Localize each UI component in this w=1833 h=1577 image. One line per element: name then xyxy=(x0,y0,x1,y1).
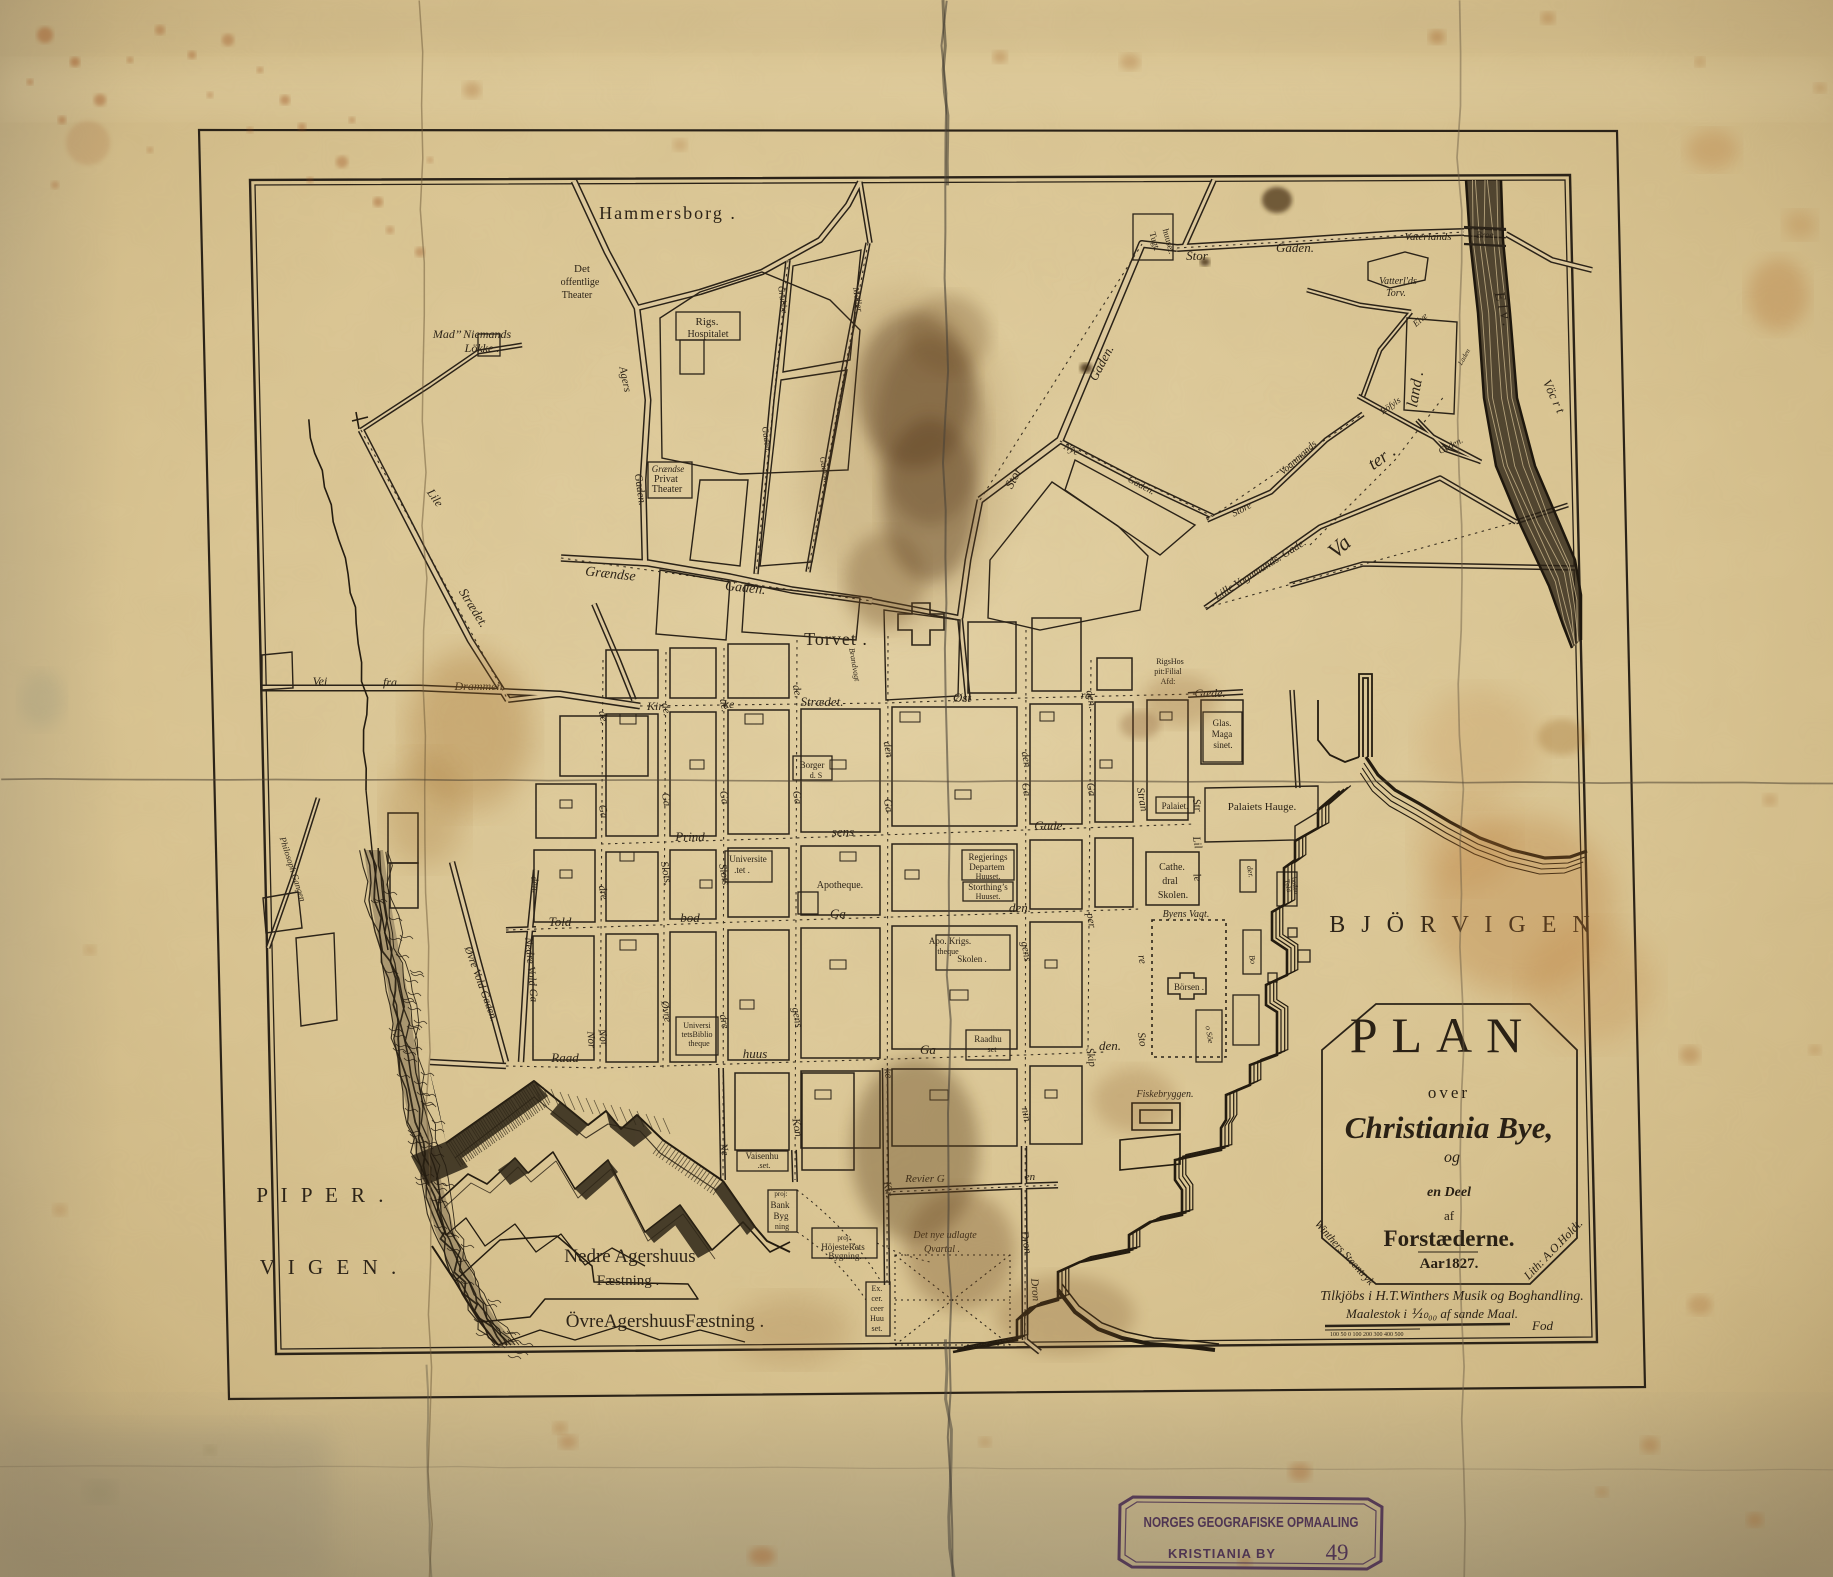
svg-text:Universite: Universite xyxy=(729,854,767,864)
svg-text:RigsHos: RigsHos xyxy=(1156,657,1184,666)
svg-text:theque: theque xyxy=(688,1039,710,1048)
svg-text:Lökke .: Lökke . xyxy=(464,341,500,355)
svg-text:den.: den. xyxy=(1099,1038,1121,1053)
svg-text:ning: ning xyxy=(775,1222,789,1231)
svg-text:dre: dre xyxy=(596,884,610,900)
svg-text:Vatterl'ds: Vatterl'ds xyxy=(1379,276,1417,287)
svg-text:over: over xyxy=(1428,1083,1470,1102)
svg-text:Øst: Øst xyxy=(952,690,971,705)
svg-text:en: en xyxy=(1025,1171,1036,1183)
svg-text:og: og xyxy=(1444,1149,1460,1166)
svg-text:Glas.: Glas. xyxy=(1213,718,1232,728)
svg-text:set.: set. xyxy=(872,1324,883,1333)
svg-text:Storthing’s: Storthing’s xyxy=(968,882,1008,892)
svg-text:den.: den. xyxy=(1009,900,1031,915)
svg-text:Nedre Agershuus: Nedre Agershuus xyxy=(564,1246,695,1267)
svg-text:Ga: Ga xyxy=(790,790,804,806)
svg-text:Prind: Prind xyxy=(674,829,705,844)
svg-text:af: af xyxy=(1444,1208,1455,1223)
svg-text:Byens Vagt.: Byens Vagt. xyxy=(1163,909,1210,920)
svg-text:Skolen .: Skolen . xyxy=(957,954,987,964)
svg-text:Mad’’ Niemands: Mad’’ Niemands xyxy=(432,327,512,341)
svg-text:KRISTIANIA BY: KRISTIANIA BY xyxy=(1168,1547,1276,1561)
svg-text:Nor: Nor xyxy=(584,1030,598,1050)
svg-text:den.: den. xyxy=(528,876,540,894)
svg-text:Hammersborg .: Hammersborg . xyxy=(599,203,737,223)
svg-text:Det: Det xyxy=(574,263,590,275)
svg-text:NORGES GEOGRAFISKE OPMAALING: NORGES GEOGRAFISKE OPMAALING xyxy=(1144,1515,1359,1531)
svg-text:Ga: Ga xyxy=(1084,782,1098,798)
svg-text:de.: de. xyxy=(659,702,673,717)
svg-text:set: set xyxy=(988,1045,998,1054)
svg-text:Universi: Universi xyxy=(683,1021,711,1030)
svg-text:nin: nin xyxy=(1019,1107,1033,1123)
svg-text:Vei: Vei xyxy=(313,674,328,688)
svg-text:Huu: Huu xyxy=(870,1314,884,1323)
svg-text:Palaiets Hauge.: Palaiets Hauge. xyxy=(1228,801,1297,813)
svg-text:Ga: Ga xyxy=(830,906,846,921)
svg-text:Ne: Ne xyxy=(717,1141,731,1156)
svg-text:Told: Told xyxy=(549,914,572,929)
svg-text:Ga: Ga xyxy=(1019,782,1033,798)
svg-text:cer.: cer. xyxy=(871,1294,882,1303)
svg-text:Bo: Bo xyxy=(1247,954,1257,964)
svg-text:Lil: Lil xyxy=(1190,834,1204,849)
svg-text:Apotheque.: Apotheque. xyxy=(817,880,863,891)
svg-text:dral: dral xyxy=(1162,876,1178,887)
svg-text:Sto: Sto xyxy=(1135,1032,1149,1048)
svg-text:Ga: Ga xyxy=(659,792,673,808)
svg-text:Strædet.: Strædet. xyxy=(801,694,844,709)
svg-text:Borger: Borger xyxy=(800,760,825,770)
svg-text:Grændse: Grændse xyxy=(652,464,685,474)
svg-text:Theater: Theater xyxy=(652,484,683,495)
svg-text:dre: dre xyxy=(717,1013,731,1029)
svg-text:Huuset.: Huuset. xyxy=(976,892,1001,901)
svg-text:fra: fra xyxy=(383,675,397,689)
svg-text:offentlige: offentlige xyxy=(561,277,600,288)
svg-text:en Deel: en Deel xyxy=(1427,1185,1471,1200)
svg-text:V I G E N .: V I G E N . xyxy=(260,1255,400,1279)
svg-text:Ex.: Ex. xyxy=(872,1284,883,1293)
svg-text:Maalestok i ⅒₀₀ af sande Maal.: Maalestok i ⅒₀₀ af sande Maal. xyxy=(1345,1306,1518,1321)
svg-text:proj:: proj: xyxy=(837,1234,850,1242)
svg-text:Ga: Ga xyxy=(717,790,731,806)
svg-text:Regjerings: Regjerings xyxy=(969,852,1008,862)
svg-text:sinet.: sinet. xyxy=(1213,740,1232,750)
svg-text:de.: de. xyxy=(717,698,731,713)
svg-text:d. S: d. S xyxy=(810,771,822,780)
svg-text:Raadhu: Raadhu xyxy=(974,1034,1002,1044)
svg-text:Hospitalet: Hospitalet xyxy=(687,329,728,340)
svg-text:huus: huus xyxy=(743,1046,768,1061)
svg-text:Apo. Krigs.: Apo. Krigs. xyxy=(929,936,971,946)
svg-text:Vaterlands: Vaterlands xyxy=(1404,231,1451,243)
svg-text:Ga: Ga xyxy=(881,798,895,814)
svg-text:Forstæderne.: Forstæderne. xyxy=(1384,1226,1515,1251)
svg-text:Skolen.: Skolen. xyxy=(1158,890,1188,901)
svg-text:Vaisenhu: Vaisenhu xyxy=(746,1151,779,1161)
svg-text:Fod: Fod xyxy=(1531,1318,1553,1333)
svg-text:49: 49 xyxy=(1326,1540,1349,1565)
svg-text:Bygning.: Bygning. xyxy=(828,1251,861,1261)
svg-text:Departem: Departem xyxy=(969,862,1004,872)
svg-text:Torv.: Torv. xyxy=(1386,288,1406,299)
svg-text:Fæstning .: Fæstning . xyxy=(597,1273,660,1289)
svg-text:Maga: Maga xyxy=(1212,729,1233,739)
svg-text:Cathe.: Cathe. xyxy=(1159,862,1185,873)
svg-text:Gade.: Gade. xyxy=(1034,818,1065,833)
svg-text:Torvet .: Torvet . xyxy=(804,629,868,649)
svg-text:Tilkjöbs i H.T.Winthers Musik: Tilkjöbs i H.T.Winthers Musik og Boghand… xyxy=(1320,1289,1583,1304)
svg-text:de.: de. xyxy=(790,684,804,699)
svg-text:ceer: ceer xyxy=(870,1304,884,1313)
svg-text:P I P E R .: P I P E R . xyxy=(256,1183,387,1207)
svg-text:Byg: Byg xyxy=(773,1211,789,1221)
svg-text:100 50 0 100 200 300 400 500: 100 50 0 100 200 300 400 500 xyxy=(1330,1332,1404,1338)
svg-text:Ga: Ga xyxy=(596,804,610,820)
svg-text:Huuset.: Huuset. xyxy=(976,872,1001,881)
svg-text:Palaiet.: Palaiet. xyxy=(1162,801,1189,811)
svg-text:sens: sens xyxy=(832,824,854,839)
svg-text:Rigs.: Rigs. xyxy=(696,316,719,328)
svg-text:Broe.: Broe. xyxy=(1476,230,1495,240)
svg-text:Bank: Bank xyxy=(771,1200,790,1210)
svg-text:.set.: .set. xyxy=(758,1161,771,1170)
svg-text:bod: bod xyxy=(680,910,700,925)
svg-text:proj:: proj: xyxy=(774,1190,787,1198)
svg-text:de.: de. xyxy=(596,710,610,725)
svg-text:Raad: Raad xyxy=(550,1050,579,1065)
svg-text:tetsBiblio: tetsBiblio xyxy=(681,1030,712,1039)
svg-text:Christiania Bye,: Christiania Bye, xyxy=(1345,1110,1553,1145)
svg-text:Ga: Ga xyxy=(920,1042,936,1057)
svg-text:Aar1827.: Aar1827. xyxy=(1420,1256,1479,1272)
svg-text:Börsen .: Börsen . xyxy=(1174,982,1204,992)
svg-text:Gaden.: Gaden. xyxy=(1276,240,1314,255)
svg-text:.tet .: .tet . xyxy=(734,865,750,875)
svg-text:Theater: Theater xyxy=(562,290,593,301)
svg-text:PLAN: PLAN xyxy=(1350,1007,1537,1063)
